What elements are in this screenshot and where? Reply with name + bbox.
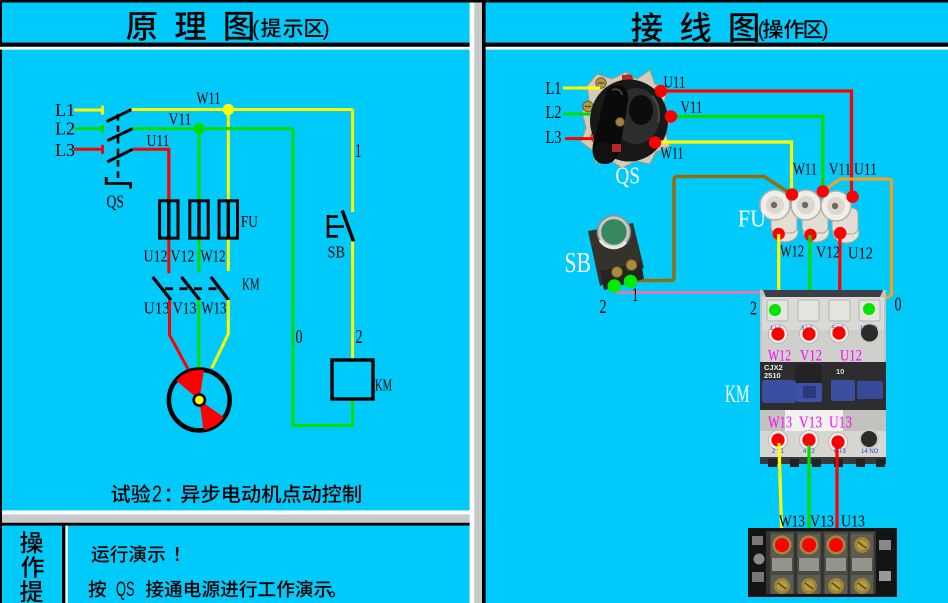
svg-text:QS: QS xyxy=(616,164,641,190)
svg-text:L2: L2 xyxy=(546,102,562,122)
svg-text:W12: W12 xyxy=(201,247,226,266)
svg-text:V12: V12 xyxy=(816,243,840,262)
svg-text:W11: W11 xyxy=(793,160,817,179)
svg-text:U12: U12 xyxy=(848,244,873,263)
svg-text:14 NO: 14 NO xyxy=(861,449,879,455)
svg-text:V11: V11 xyxy=(681,98,703,117)
svg-text:V12: V12 xyxy=(800,348,822,365)
svg-text:FU: FU xyxy=(738,207,766,233)
svg-text:V13: V13 xyxy=(799,413,822,432)
svg-text:W11: W11 xyxy=(661,144,684,163)
svg-text:W13: W13 xyxy=(768,413,792,432)
svg-text:2: 2 xyxy=(356,326,363,348)
svg-text:U12: U12 xyxy=(144,247,168,266)
svg-text:QS: QS xyxy=(116,578,135,601)
svg-text:V12: V12 xyxy=(171,247,195,266)
svg-text:FU: FU xyxy=(241,212,258,231)
svg-text:SB: SB xyxy=(565,248,592,279)
svg-text:L1: L1 xyxy=(546,78,562,98)
svg-text:V13: V13 xyxy=(810,512,834,531)
svg-text:1: 1 xyxy=(355,140,362,162)
svg-text:0: 0 xyxy=(296,326,303,348)
svg-text:SB: SB xyxy=(328,243,346,262)
svg-text:U12: U12 xyxy=(840,348,862,365)
svg-text:10: 10 xyxy=(836,367,844,376)
svg-text:W11: W11 xyxy=(197,89,221,108)
svg-text:W13: W13 xyxy=(201,299,226,318)
svg-text:2: 2 xyxy=(750,298,757,320)
svg-text:2: 2 xyxy=(152,481,162,507)
svg-text:1: 1 xyxy=(632,284,639,306)
svg-text:2: 2 xyxy=(600,296,607,318)
svg-text:U13: U13 xyxy=(841,512,865,531)
svg-text:W12: W12 xyxy=(780,242,804,261)
svg-text:KM: KM xyxy=(242,275,260,294)
svg-text:V11: V11 xyxy=(169,110,192,129)
svg-text:): ) xyxy=(323,16,330,40)
svg-text:L3: L3 xyxy=(55,140,75,160)
svg-text:U11: U11 xyxy=(147,131,170,150)
svg-text:U13: U13 xyxy=(829,413,852,432)
svg-text:L1: L1 xyxy=(55,100,75,120)
svg-text:U11: U11 xyxy=(854,160,877,179)
svg-text:U13: U13 xyxy=(144,299,170,318)
svg-text:W12: W12 xyxy=(768,348,791,365)
svg-text:V13: V13 xyxy=(173,299,197,318)
svg-text:V11: V11 xyxy=(829,160,851,179)
svg-text:KM: KM xyxy=(725,381,750,408)
svg-text:L3: L3 xyxy=(546,127,562,147)
svg-text:2510: 2510 xyxy=(764,371,781,380)
svg-text:(: ( xyxy=(252,16,260,40)
svg-text:W13: W13 xyxy=(779,512,805,531)
svg-text:0: 0 xyxy=(895,294,902,316)
svg-text:QS: QS xyxy=(107,192,125,212)
svg-text:L2: L2 xyxy=(55,118,75,138)
svg-text:U11: U11 xyxy=(664,73,686,92)
svg-text:KM: KM xyxy=(375,376,392,395)
